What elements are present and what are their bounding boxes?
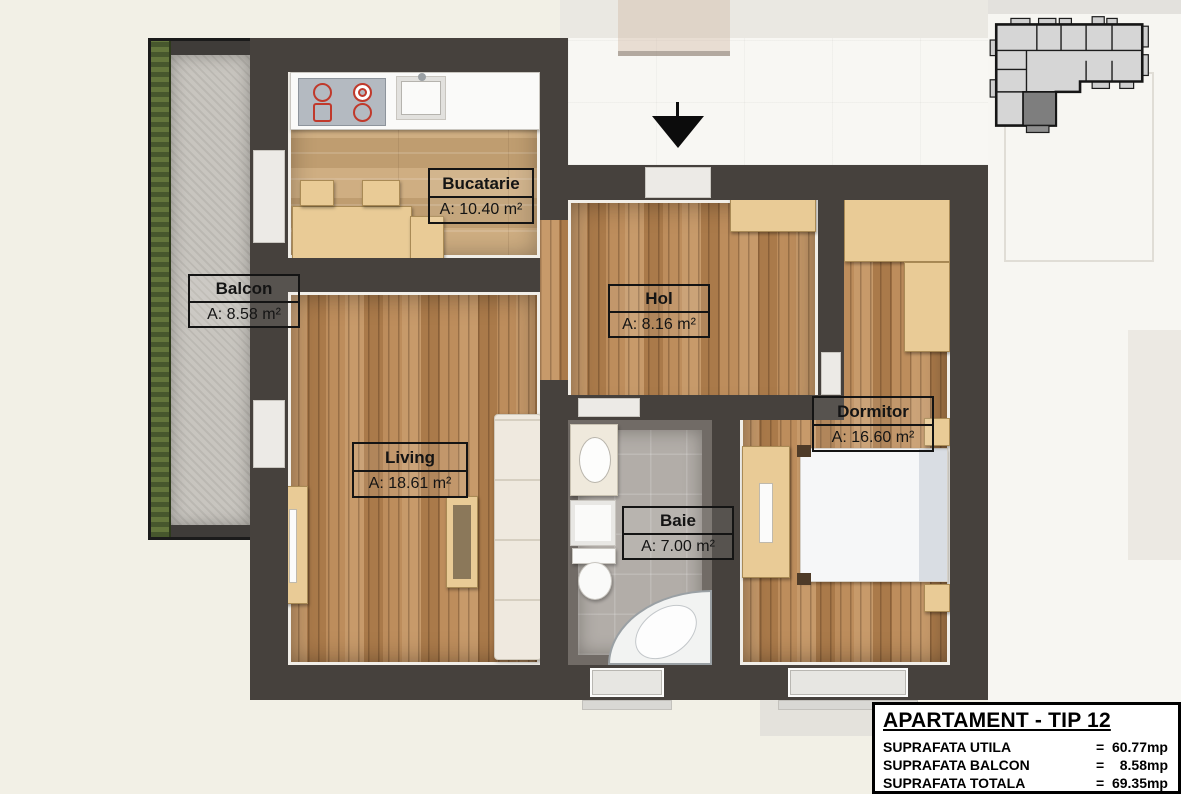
tv [289,509,297,583]
surface-label: SUPRAFATA BALCON [883,756,1096,774]
room-label-balcon: Balcon A: 8.58 m² [188,274,300,328]
bathroom-door [578,398,640,417]
vanity-sink [579,437,611,483]
room-label-bucatarie: Bucatarie A: 10.40 m² [428,168,534,224]
sofa [494,414,542,660]
coffee-table [446,496,478,588]
faint-adjacent-apartment-top [618,0,730,56]
title-block: APARTAMENT - TIP 12 SUPRAFATA UTILA = 60… [872,702,1181,794]
room-label-baie: Baie A: 7.00 m² [622,506,734,560]
wall-left [250,38,288,665]
room-name: Baie [624,509,732,535]
bathroom-window [590,668,664,697]
balcony-door-kitchen [253,150,285,243]
balcony-door-living [253,400,285,468]
minimap-highlighted-unit [1023,92,1056,126]
wardrobe-side [904,262,950,352]
balcony-hedge [151,41,171,537]
room-name: Dormitor [814,400,932,426]
stove-burner [353,103,372,122]
room-area: A: 8.16 m² [610,313,708,336]
entrance-door [645,167,711,198]
room-name: Balcon [190,277,298,303]
window-sill [582,700,672,710]
wall-hall-top [540,165,988,200]
wall-living-hall [540,380,568,665]
surface-row-totala: SUPRAFATA TOTALA = 69.35mp [883,774,1168,792]
toilet-bowl [578,562,612,600]
room-label-hol: Hol A: 8.16 m² [608,284,710,338]
room-label-dormitor: Dormitor A: 16.60 m² [812,396,934,452]
kitchen-stool [362,180,400,206]
wall-kitchen-top [250,38,568,72]
surface-row-balcon: SUPRAFATA BALCON = 8.58mp [883,756,1168,774]
desk [742,446,790,578]
living-hall-passage-floor [540,292,568,380]
surface-label: SUPRAFATA UTILA [883,738,1096,756]
room-name: Living [354,446,466,472]
surface-value: 60.77mp [1110,738,1168,756]
equals-sign: = [1096,774,1110,792]
nightstand [924,584,950,612]
washing-machine [570,500,616,546]
entrance-arrow-icon [652,116,704,148]
entrance-arrow-stem [676,102,679,117]
equals-sign: = [1096,756,1110,774]
bed [800,448,948,582]
faucet [418,73,426,81]
kitchen-stool [300,180,334,206]
bed-frame-corner [797,445,811,457]
stove-burner [313,83,332,102]
stove-burner [353,83,372,102]
surface-label: SUPRAFATA TOTALA [883,774,1096,792]
room-area: A: 8.58 m² [190,303,298,326]
surface-value: 69.35mp [1110,774,1168,792]
surface-row-utila: SUPRAFATA UTILA = 60.77mp [883,738,1168,756]
bed-frame-corner [797,573,811,585]
bathroom-vanity [570,424,618,496]
faint-adjacent-balcony-right [1128,330,1181,560]
room-name: Bucatarie [430,172,532,198]
floorplan-image: Bucatarie A: 10.40 m² Balcon A: 8.58 m² … [0,0,1181,794]
bedroom-door [821,352,841,395]
wall-kitchen-living [288,258,540,292]
wall-right [950,165,988,700]
building-corridor-floor [568,38,988,165]
room-area: A: 7.00 m² [624,535,732,558]
room-area: A: 18.61 m² [354,472,466,495]
stove-burner [313,103,332,122]
building-locator-minimap [985,6,1163,138]
bedroom-window [788,668,908,697]
equals-sign: = [1096,738,1110,756]
minimap-highlighted-unit-balcony [1026,126,1048,133]
hall-kitchen-passage-floor [540,220,568,292]
kitchen-sink [396,76,446,120]
apartment-title: APARTAMENT - TIP 12 [883,709,1168,733]
bed-pillows [919,449,947,581]
coffee-table-inset [453,505,471,579]
minimap-building-outline [996,24,1142,125]
room-area: A: 10.40 m² [430,198,532,221]
room-label-living: Living A: 18.61 m² [352,442,468,498]
laptop [759,483,773,543]
surface-value: 8.58mp [1110,756,1168,774]
stove-cooktop [298,78,386,126]
room-name: Hol [610,287,708,313]
room-area: A: 16.60 m² [814,426,932,449]
